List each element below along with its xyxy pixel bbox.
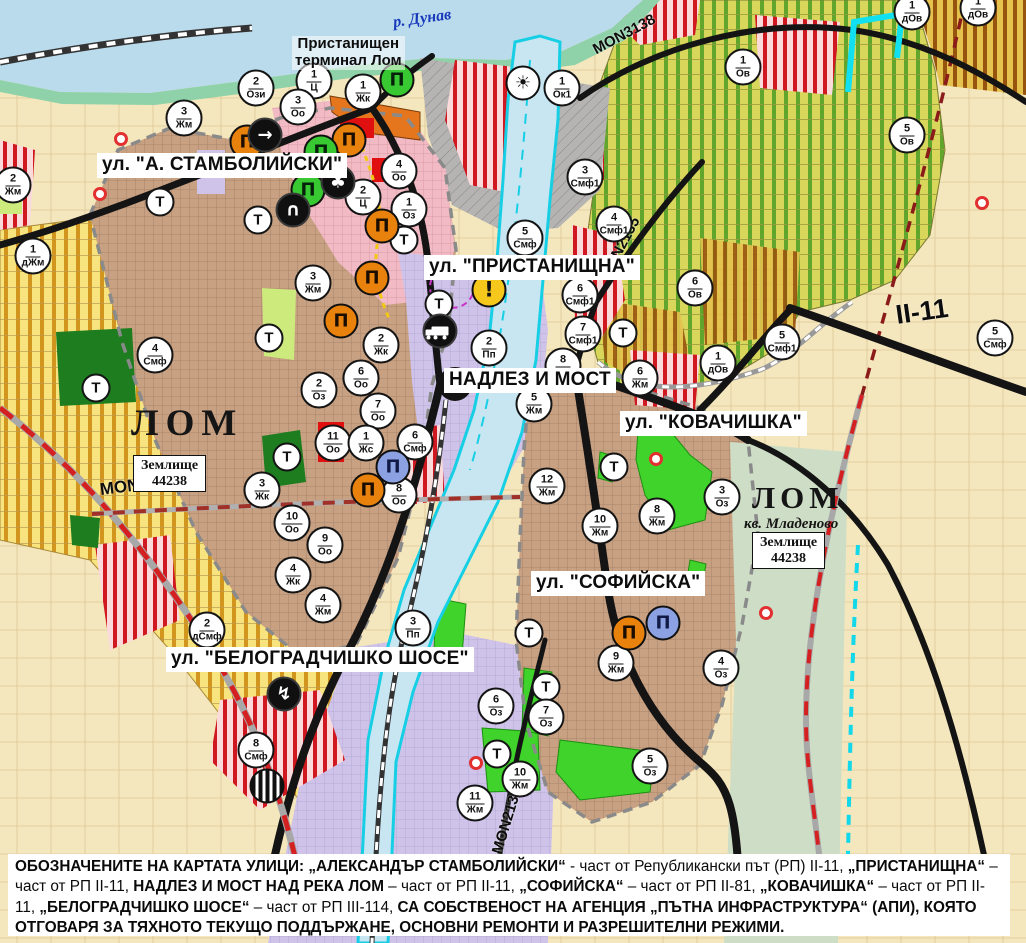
mon-orange-icon: Π — [355, 261, 390, 296]
zone-marker: 2Ози — [238, 70, 275, 107]
zemlishte-box-west: Землище 44238 — [133, 455, 206, 492]
zone-marker: 2Жк — [363, 327, 400, 364]
tunnel-icon: ∩ — [276, 193, 311, 228]
zone-marker: 8Смф — [238, 732, 275, 769]
terminal-label-line1: Пристанищен — [298, 35, 400, 52]
transformer-marker: Т — [273, 443, 302, 472]
zone-marker: 1Жк — [345, 74, 382, 111]
zone-marker: 3Смф1 — [567, 159, 604, 196]
zone-marker: 2дСмф — [189, 612, 226, 649]
terminal-label-line2: терминал Лом — [295, 52, 402, 69]
zemlishte-box-east: Землище 44238 — [752, 532, 825, 569]
zone-marker: 3Жм — [166, 100, 203, 137]
zone-marker: 2Жм — [0, 167, 32, 204]
zone-marker: 5Смф1 — [764, 324, 801, 361]
zemlishte-east-line1: Землище — [760, 535, 817, 550]
map-caption: ОБОЗНАЧЕНИТЕ НА КАРТАТА УЛИЦИ: „АЛЕКСАНД… — [8, 854, 1010, 936]
sun-icon: ☀ — [506, 66, 541, 101]
red-point-marker — [975, 196, 989, 210]
station-icon — [250, 769, 285, 804]
zoning-map-canvas: р. Дунав Пристанищен терминал Лом ЛОМ Зе… — [0, 0, 1026, 943]
zone-marker: 3Жм — [295, 265, 332, 302]
zone-marker: 4Смф — [137, 337, 174, 374]
street-label-stambolijski: ул. "А. СТАМБОЛИЙСКИ" — [97, 153, 347, 178]
zone-marker: 2Пп — [471, 330, 508, 367]
road-label-ii-11: II-11 — [894, 293, 950, 331]
zone-marker: 1дОв — [894, 0, 931, 31]
zemlishte-east-line2: 44238 — [771, 551, 806, 566]
kv-mladenovo-label: кв. Младеново — [744, 516, 838, 533]
transformer-marker: Т — [255, 324, 284, 353]
zone-marker: 4Оо — [381, 153, 418, 190]
zone-marker: 4Смф1 — [596, 206, 633, 243]
transformer-marker: Т — [244, 206, 273, 235]
transformer-marker: Т — [609, 319, 638, 348]
zone-marker: 12Жм — [529, 468, 566, 505]
truck-icon — [423, 314, 458, 349]
lightning-icon: ↯ — [267, 677, 302, 712]
street-label-kovachishka: ул. "КОВАЧИШКА" — [620, 411, 807, 436]
transformer-marker: Т — [515, 619, 544, 648]
zone-marker: 3Пп — [395, 610, 432, 647]
zone-marker: 10Оо — [274, 505, 311, 542]
zone-marker: 3Жк — [244, 472, 281, 509]
red-point-marker — [649, 452, 663, 466]
street-label-belogradchishko-shose: ул. "БЕЛОГРАДЧИШКО ШОСЕ" — [166, 647, 474, 672]
zone-marker: 8Жм — [639, 498, 676, 535]
zone-marker: 5Оз — [632, 748, 669, 785]
zone-marker: 7Смф1 — [565, 316, 602, 353]
river-danube-label: р. Дунав — [392, 6, 452, 32]
zone-marker: 4Оз — [703, 650, 740, 687]
road-label-mon3138: MON3138 — [590, 11, 658, 58]
transformer-marker: Т — [600, 453, 629, 482]
mon-orange-icon: Π — [365, 209, 400, 244]
zone-marker: 6Оз — [478, 688, 515, 725]
zone-marker: 2Оз — [301, 372, 338, 409]
zone-marker: 10Жм — [582, 508, 619, 545]
zone-marker: 6Ов — [677, 270, 714, 307]
zemlishte-west-line1: Землище — [141, 458, 198, 473]
street-label-nadlez-i-most: НАДЛЕЗ И МОСТ — [444, 368, 616, 393]
arrow-icon: → — [248, 118, 283, 153]
zone-marker: 4Жм — [305, 587, 342, 624]
zone-marker: 3Оо — [280, 89, 317, 126]
zone-marker: 7Оз — [528, 699, 565, 736]
transformer-marker: Т — [532, 673, 561, 702]
zemlishte-west-line2: 44238 — [152, 474, 187, 489]
red-point-marker — [759, 606, 773, 620]
red-point-marker — [469, 756, 483, 770]
street-label-sofiyska: ул. "СОФИЙСКА" — [531, 571, 705, 596]
zone-marker: 1дОв — [960, 0, 997, 27]
zone-marker: 9Оо — [307, 527, 344, 564]
zone-marker: 3Оз — [704, 479, 741, 516]
zone-marker: 1дЖм — [15, 238, 52, 275]
zone-marker: 4Жк — [275, 557, 312, 594]
zone-marker: 5Ов — [889, 117, 926, 154]
zone-marker: 5Смф — [507, 220, 544, 257]
transformer-marker: Т — [82, 374, 111, 403]
map-annotation-layer: р. Дунав Пристанищен терминал Лом ЛОМ Зе… — [0, 0, 1026, 943]
zone-marker: 10Жм — [502, 761, 539, 798]
zone-marker: 11Жм — [457, 785, 494, 822]
zone-marker: 1дОв — [700, 345, 737, 382]
zone-marker: 6Оо — [343, 360, 380, 397]
street-label-pristanishtna: ул. "ПРИСТАНИЩНА" — [424, 255, 640, 280]
zone-marker: 6Жм — [622, 360, 659, 397]
lom-city-label-east: ЛОМ — [752, 480, 843, 516]
zone-marker: 5Смф — [977, 320, 1014, 357]
mon-blue-icon: Π — [376, 450, 411, 485]
zone-marker: 6Смф1 — [562, 277, 599, 314]
zone-marker: 1Ов — [725, 49, 762, 86]
red-point-marker — [114, 132, 128, 146]
zone-marker: 11Оо — [315, 425, 352, 462]
red-point-marker — [93, 187, 107, 201]
port-terminal-label: Пристанищен терминал Лом — [292, 36, 405, 70]
transformer-marker: Т — [146, 188, 175, 217]
mon-orange-icon: Π — [612, 616, 647, 651]
mon-blue-icon: Π — [646, 606, 681, 641]
zone-marker: 1Ок1 — [544, 70, 581, 107]
mon-orange-icon: Π — [324, 304, 359, 339]
lom-city-label-west: ЛОМ — [131, 402, 243, 445]
